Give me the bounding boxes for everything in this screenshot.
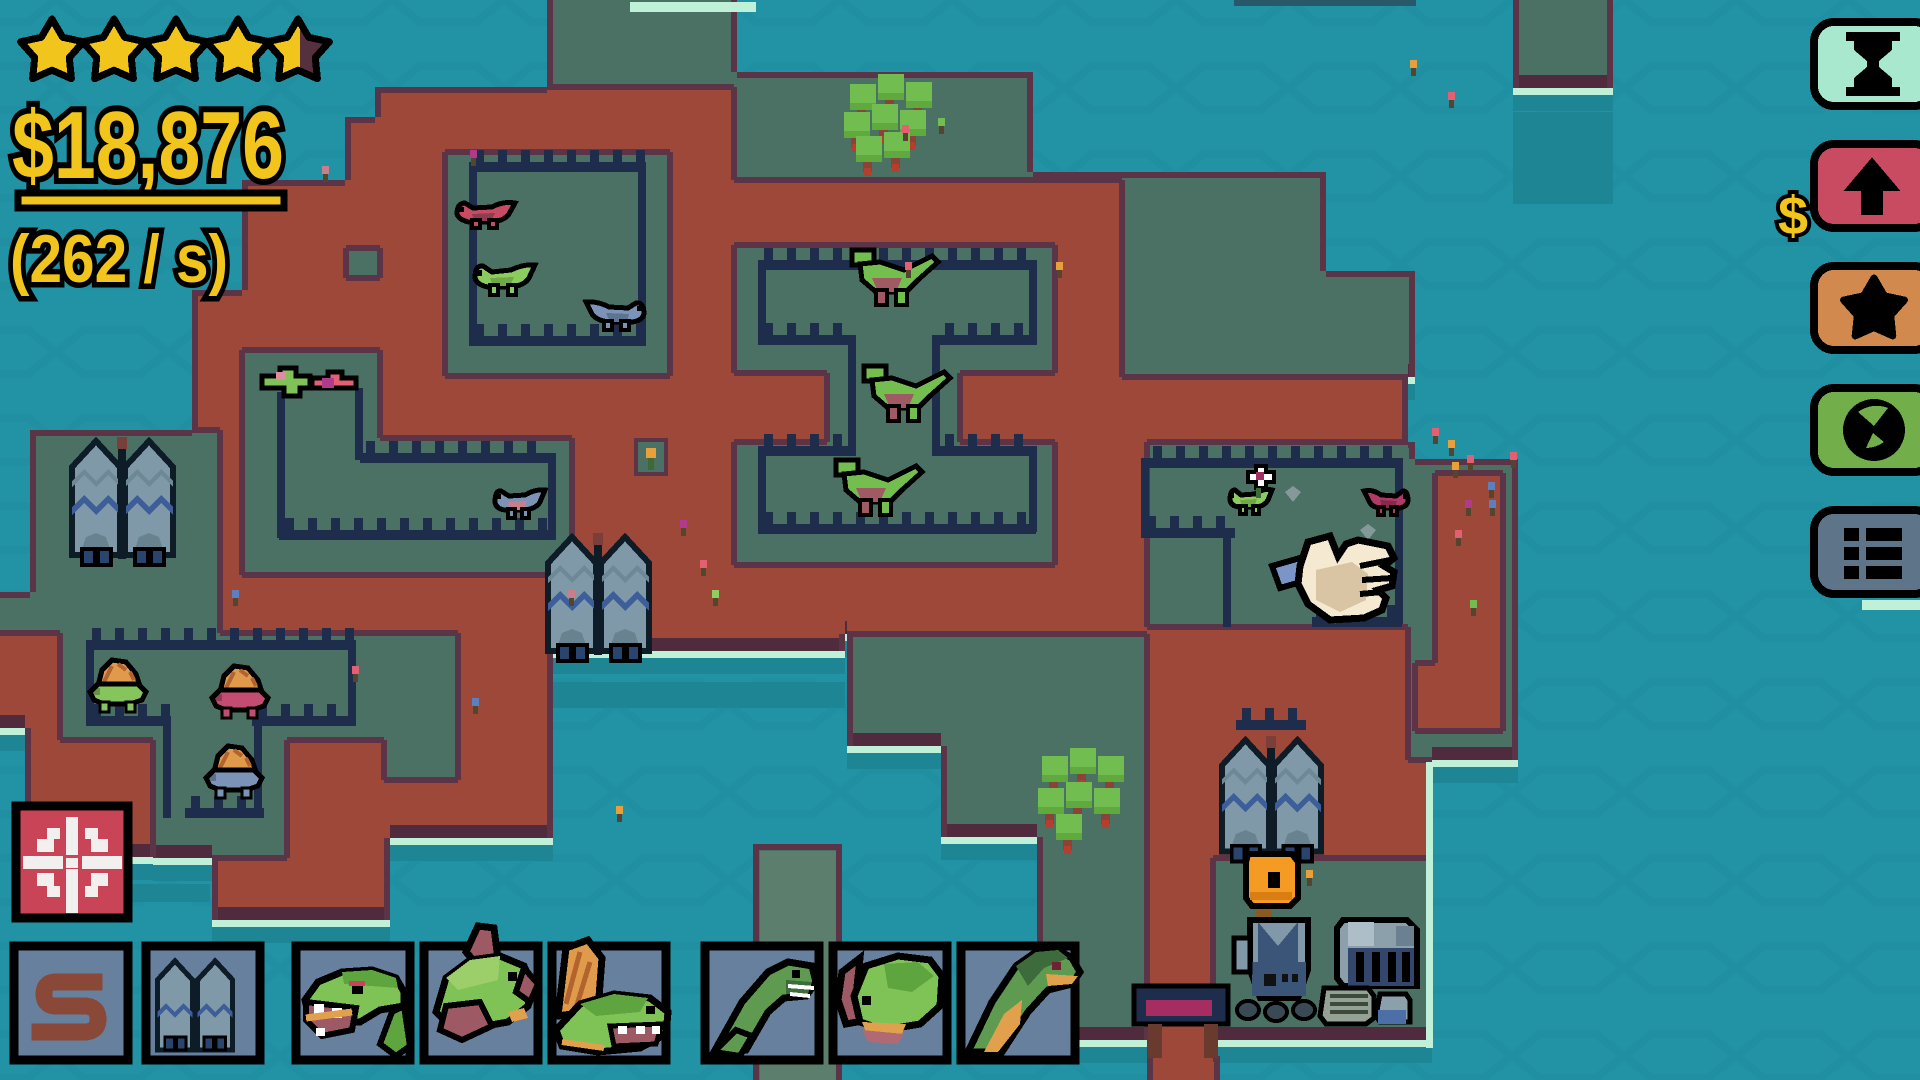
svg-text:$: $ [1778,186,1808,246]
svg-text:$18,876: $18,876 [12,92,284,199]
svg-text:(262 / s): (262 / s) [10,221,228,297]
